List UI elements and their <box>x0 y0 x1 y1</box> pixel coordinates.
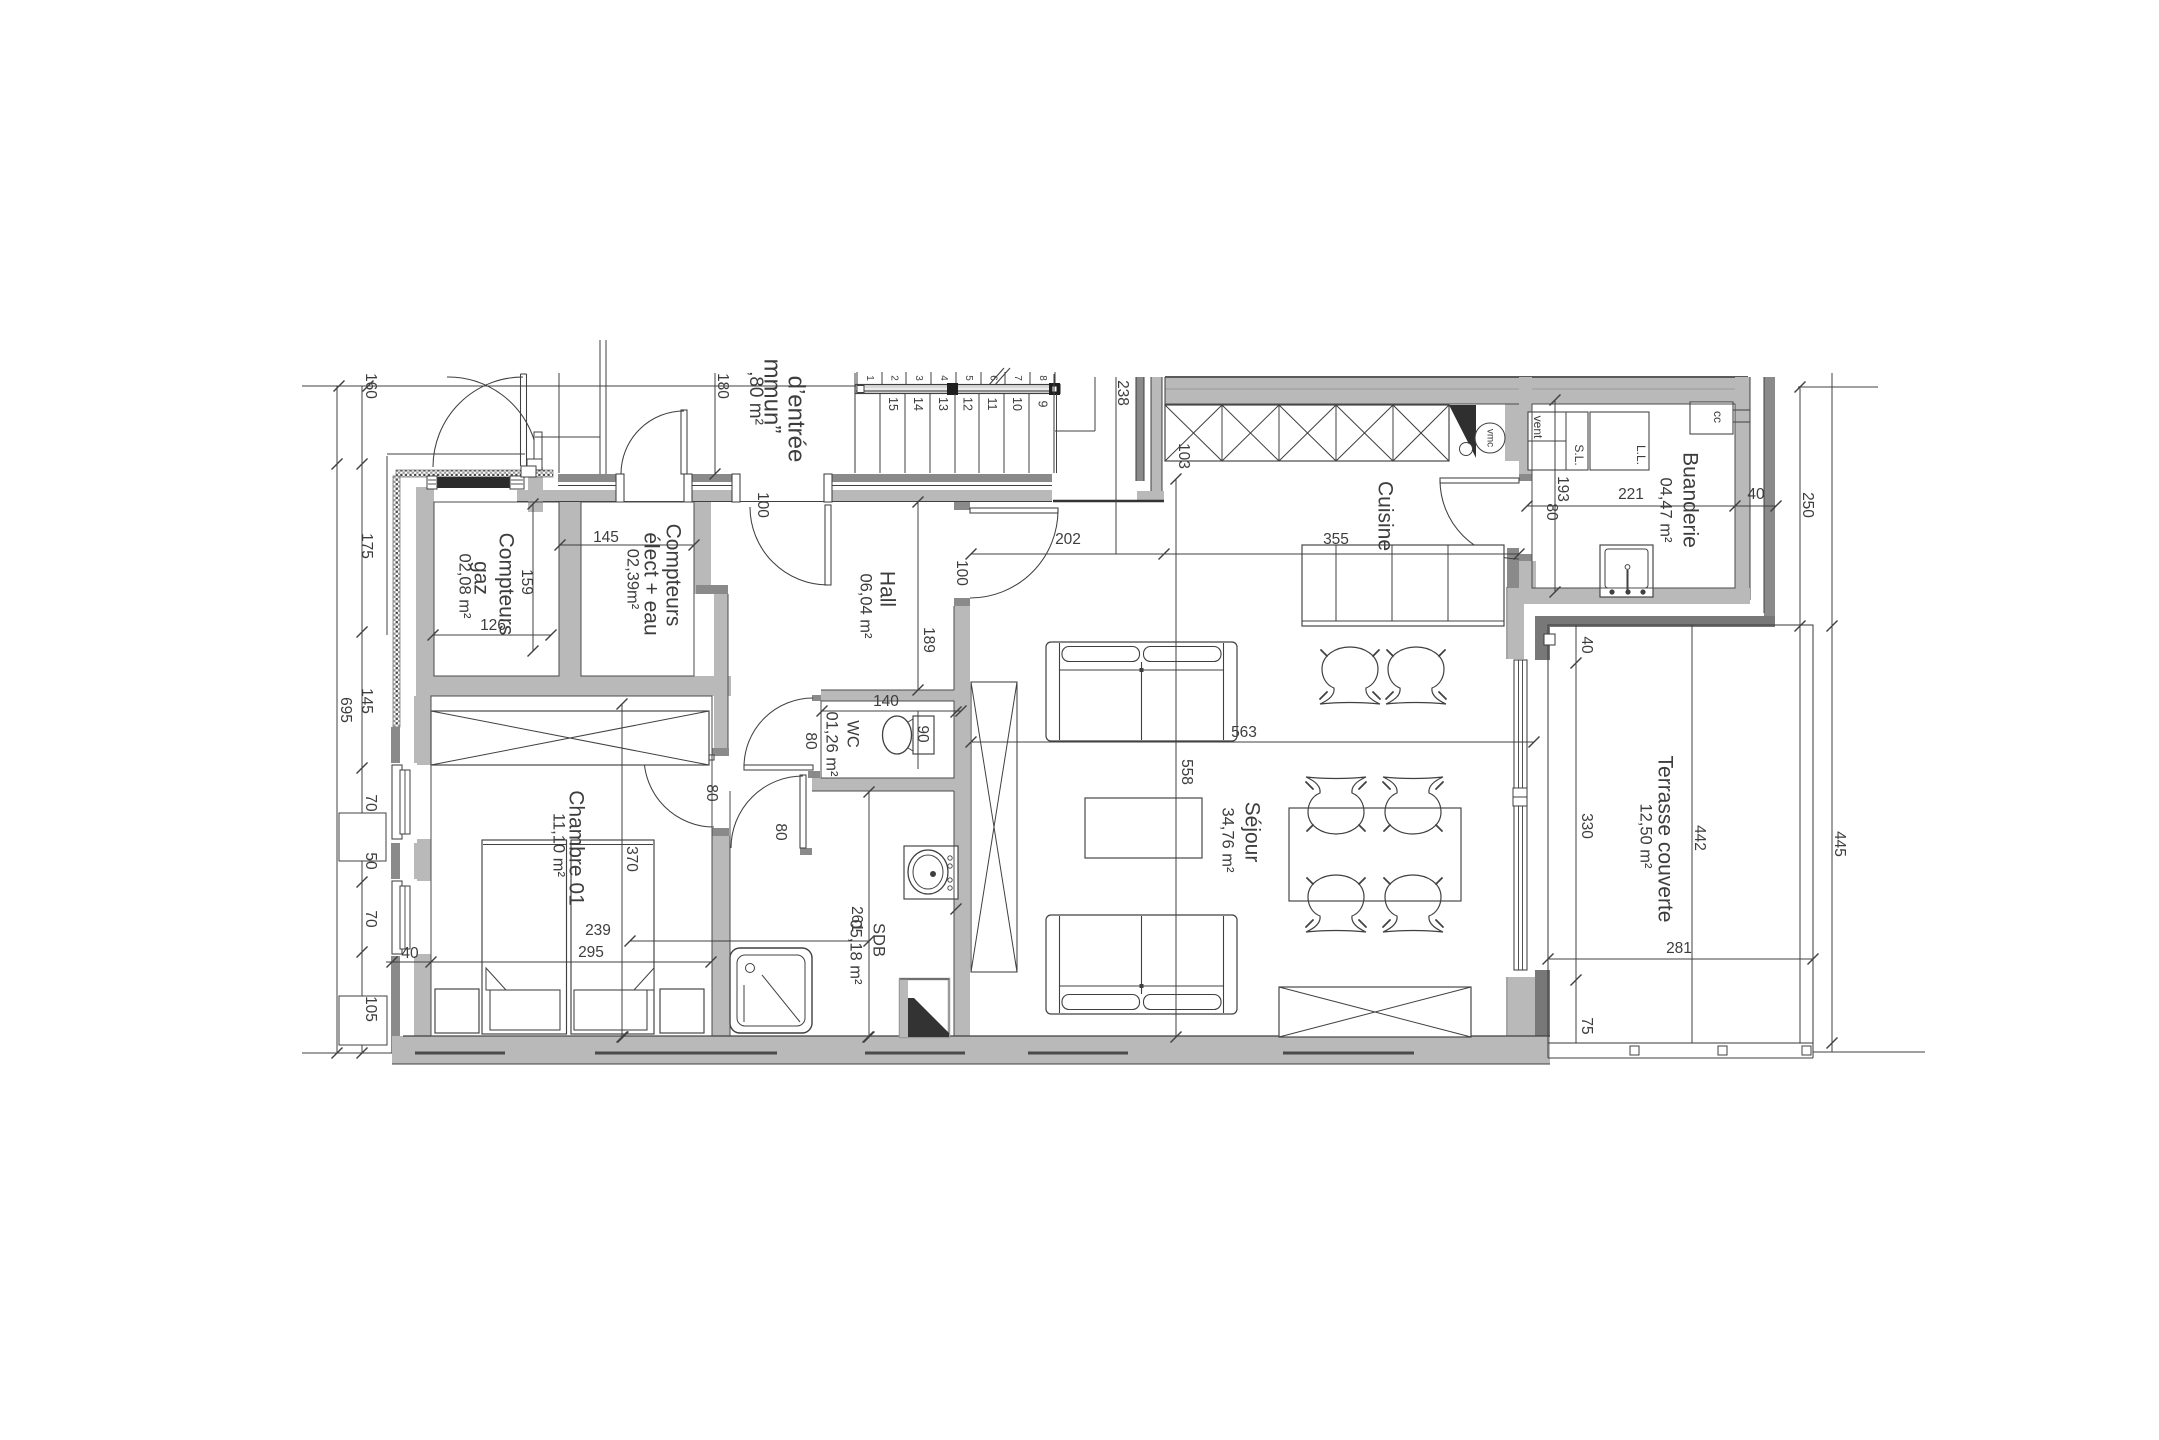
svg-text:15: 15 <box>886 397 900 411</box>
svg-text:80: 80 <box>703 784 720 802</box>
svg-text:04,47 m²: 04,47 m² <box>1657 477 1675 543</box>
svg-text:vmc: vmc <box>1484 429 1495 447</box>
svg-text:40: 40 <box>401 945 419 962</box>
svg-text:Cuisine: Cuisine <box>1373 481 1396 551</box>
svg-text:4: 4 <box>938 375 949 381</box>
svg-text:12,50 m²: 12,50 m² <box>1637 803 1655 869</box>
svg-text:1: 1 <box>864 375 875 381</box>
svg-text:100: 100 <box>953 560 970 586</box>
svg-text:02,08 m²: 02,08 m² <box>456 553 474 619</box>
svg-text:40: 40 <box>1747 486 1765 503</box>
svg-text:140: 140 <box>873 693 899 710</box>
svg-text:8: 8 <box>1037 375 1048 381</box>
svg-text:2: 2 <box>888 375 899 381</box>
svg-text:100: 100 <box>754 492 771 518</box>
svg-text:Buanderie: Buanderie <box>1678 452 1701 548</box>
svg-text:Compteurs: Compteurs <box>494 533 517 636</box>
svg-text:13: 13 <box>936 397 950 411</box>
svg-text:34,76 m²: 34,76 m² <box>1219 807 1237 873</box>
svg-text:Séjour: Séjour <box>1240 802 1263 863</box>
svg-text:90: 90 <box>914 725 931 743</box>
svg-text:12: 12 <box>961 397 975 411</box>
svg-text:180: 180 <box>714 373 731 399</box>
svg-text:75: 75 <box>1578 1017 1595 1034</box>
svg-text:Hall: Hall <box>875 571 898 607</box>
svg-text:70: 70 <box>362 794 379 812</box>
svg-text:14: 14 <box>911 397 925 411</box>
svg-text:11: 11 <box>985 398 999 411</box>
svg-text:239: 239 <box>585 922 611 939</box>
svg-text:238: 238 <box>1114 380 1131 406</box>
svg-text:3: 3 <box>913 375 924 381</box>
svg-text:202: 202 <box>1055 531 1081 548</box>
svg-text:103: 103 <box>1175 443 1192 469</box>
svg-text:330: 330 <box>1578 813 1595 839</box>
svg-text:,80 m²: ,80 m² <box>745 371 766 425</box>
svg-text:695: 695 <box>337 697 354 723</box>
svg-text:Compteurs: Compteurs <box>661 524 684 627</box>
svg-text:5: 5 <box>963 375 974 381</box>
svg-text:élect + eau: élect + eau <box>639 532 662 635</box>
svg-text:01,26 m²: 01,26 m² <box>823 711 841 777</box>
svg-text:295: 295 <box>578 944 604 961</box>
svg-text:145: 145 <box>358 688 375 714</box>
svg-text:160: 160 <box>362 373 379 399</box>
svg-text:7: 7 <box>1012 375 1023 381</box>
svg-text:d’entrée: d’entrée <box>783 376 810 463</box>
svg-text:281: 281 <box>1666 940 1692 957</box>
svg-text:9: 9 <box>1036 401 1050 408</box>
svg-text:11,10 m²: 11,10 m² <box>550 813 568 877</box>
svg-text:445: 445 <box>1831 831 1848 857</box>
svg-text:189: 189 <box>920 627 937 653</box>
svg-text:cc: cc <box>1711 411 1725 423</box>
svg-text:159: 159 <box>518 569 535 595</box>
svg-text:193: 193 <box>1554 476 1571 502</box>
svg-text:70: 70 <box>362 910 379 928</box>
svg-text:40: 40 <box>1578 636 1595 654</box>
svg-text:05,18 m²: 05,18 m² <box>847 919 865 985</box>
svg-text:WC: WC <box>844 720 862 748</box>
svg-text:442: 442 <box>1691 825 1708 851</box>
svg-text:SDB: SDB <box>870 923 888 957</box>
svg-text:80: 80 <box>802 732 819 750</box>
svg-text:145: 145 <box>593 529 619 546</box>
svg-text:221: 221 <box>1618 486 1644 503</box>
svg-text:355: 355 <box>1323 531 1349 548</box>
svg-text:06,04 m²: 06,04 m² <box>857 573 875 639</box>
svg-text:L.L.: L.L. <box>1634 445 1648 465</box>
svg-text:80: 80 <box>772 823 789 841</box>
svg-text:50: 50 <box>362 852 379 870</box>
svg-text:Terrasse couverte: Terrasse couverte <box>1653 756 1676 923</box>
svg-text:S.L.: S.L. <box>1572 444 1586 465</box>
svg-text:250: 250 <box>1799 492 1816 518</box>
svg-text:563: 563 <box>1231 724 1257 741</box>
svg-text:105: 105 <box>362 996 379 1022</box>
svg-text:175: 175 <box>358 533 375 559</box>
svg-text:02,39m²: 02,39m² <box>624 549 642 610</box>
svg-text:370: 370 <box>623 846 640 872</box>
svg-text:558: 558 <box>1178 759 1195 785</box>
svg-text:vent: vent <box>1531 416 1545 439</box>
svg-text:10: 10 <box>1010 397 1024 411</box>
